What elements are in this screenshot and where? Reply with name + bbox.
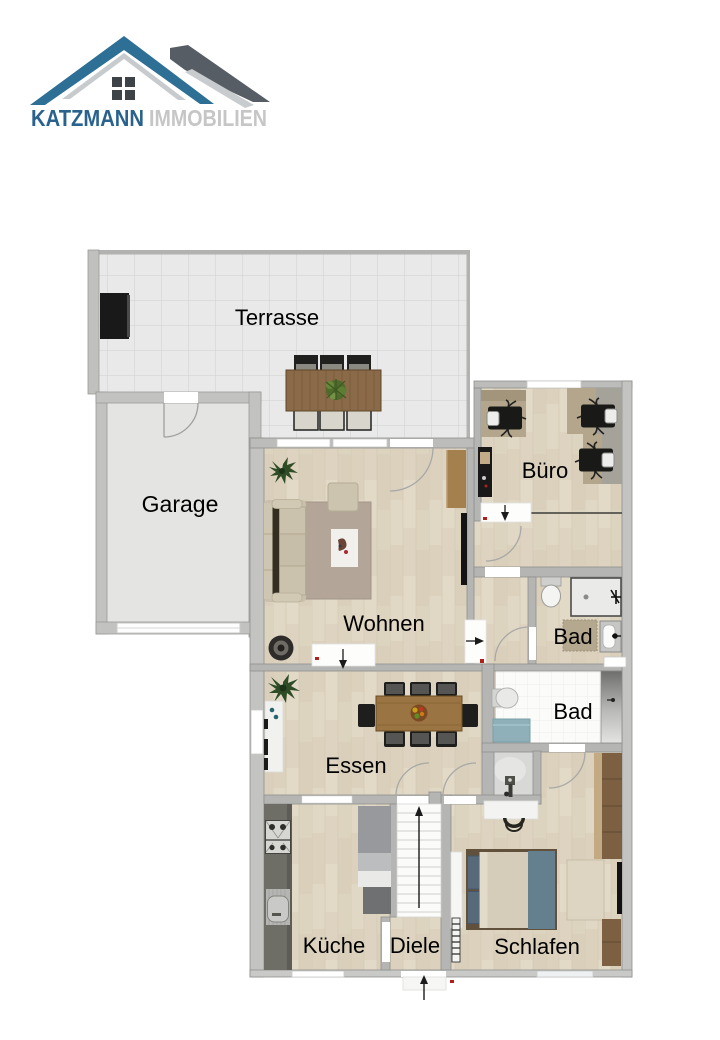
svg-text:Schlafen: Schlafen [494,934,580,959]
svg-text:Terrasse: Terrasse [235,305,319,330]
svg-text:KATZMANN: KATZMANN [31,105,144,131]
svg-text:Bad: Bad [553,699,592,724]
svg-text:Bad: Bad [553,624,592,649]
svg-text:Wohnen: Wohnen [343,611,425,636]
svg-text:Diele: Diele [390,933,440,958]
svg-text:IMMOBILIEN: IMMOBILIEN [149,105,267,131]
svg-text:Garage: Garage [142,491,219,517]
svg-text:Büro: Büro [522,458,568,483]
svg-text:Essen: Essen [325,753,386,778]
svg-text:Küche: Küche [303,933,365,958]
